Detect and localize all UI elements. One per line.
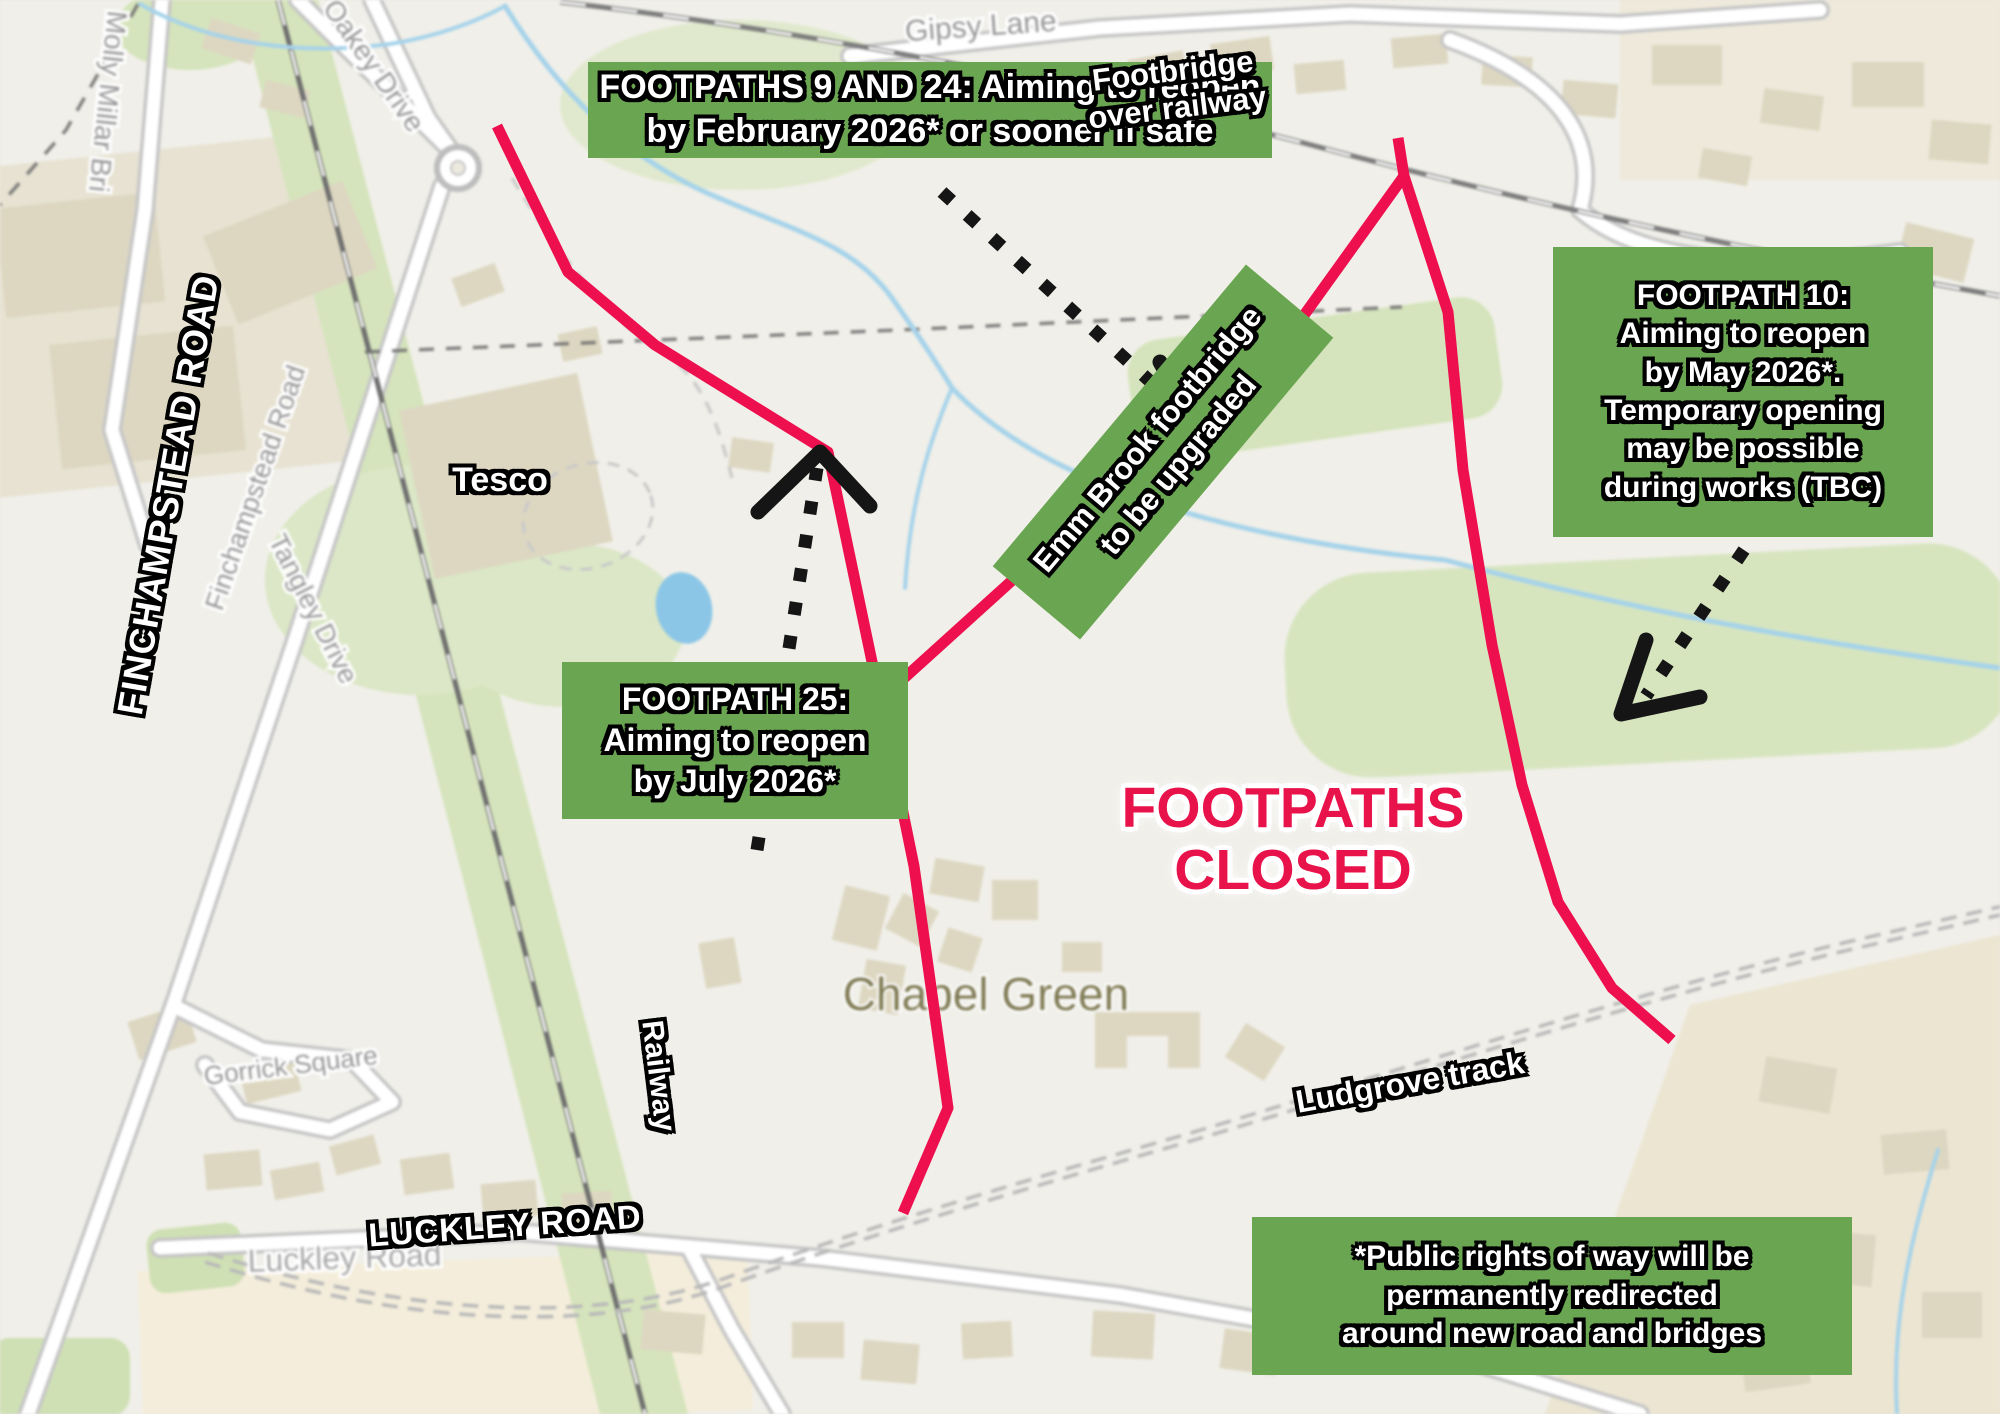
- annotation-box-footnote: *Public rights of way will be permanentl…: [1252, 1217, 1852, 1375]
- annotation-line: *Public rights of way will be: [1252, 1238, 1852, 1276]
- annotation-box-footpath-10: FOOTPATH 10: Aiming to reopen by May 202…: [1553, 247, 1933, 537]
- annotation-line: during works (TBC): [1553, 469, 1933, 507]
- annotation-line: FOOTPATH 25:: [562, 679, 908, 720]
- annotation-line: Aiming to reopen: [562, 720, 908, 761]
- annotation-line: by July 2026*: [562, 761, 908, 802]
- annotation-box-footpath-25: FOOTPATH 25: Aiming to reopen by July 20…: [562, 662, 908, 819]
- annotation-line: FOOTPATH 10:: [1553, 277, 1933, 315]
- closed-route-footbridge-stub: [1398, 138, 1404, 176]
- annotation-line: Aiming to reopen: [1553, 315, 1933, 353]
- annotation-line: may be possible: [1553, 430, 1933, 468]
- map-canvas: Gipsy Lane Molly Millar Bri Oakey Drive …: [0, 0, 2000, 1414]
- arrow-footpath-10: [1646, 550, 1744, 696]
- annotation-line: by May 2026*.: [1553, 354, 1933, 392]
- annotation-line: permanently redirected: [1252, 1277, 1852, 1315]
- headline-line: CLOSED: [1053, 840, 1533, 902]
- headline-line: FOOTPATHS: [1053, 778, 1533, 840]
- footpaths-closed-headline: FOOTPATHS CLOSED: [1053, 778, 1533, 901]
- annotation-line: Temporary opening: [1553, 392, 1933, 430]
- route-overlay: [0, 0, 2000, 1414]
- arrowhead-footpath-10: [1621, 640, 1700, 714]
- annotation-line: around new road and bridges: [1252, 1315, 1852, 1353]
- tesco-label: Tesco: [435, 460, 565, 501]
